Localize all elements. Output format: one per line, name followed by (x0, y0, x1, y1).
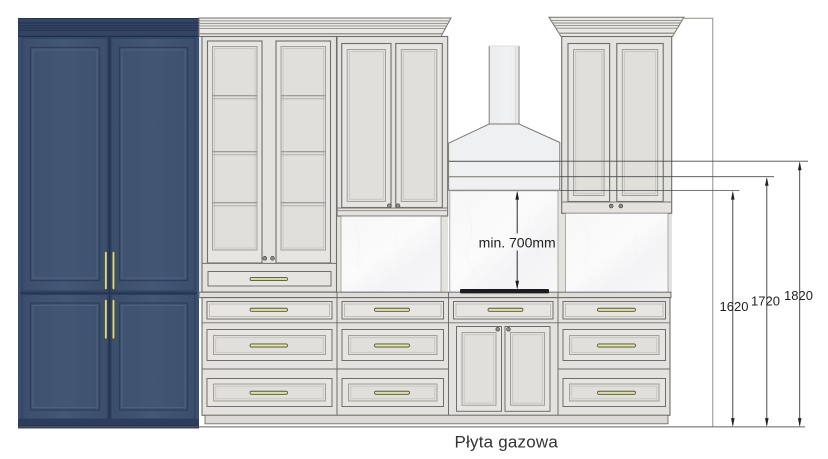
svg-text:min. 700mm: min. 700mm (479, 234, 556, 250)
svg-text:Płyta gazowa: Płyta gazowa (455, 433, 559, 452)
svg-text:1820: 1820 (784, 288, 813, 303)
svg-text:1620: 1620 (720, 299, 749, 314)
svg-text:1720: 1720 (751, 294, 780, 309)
